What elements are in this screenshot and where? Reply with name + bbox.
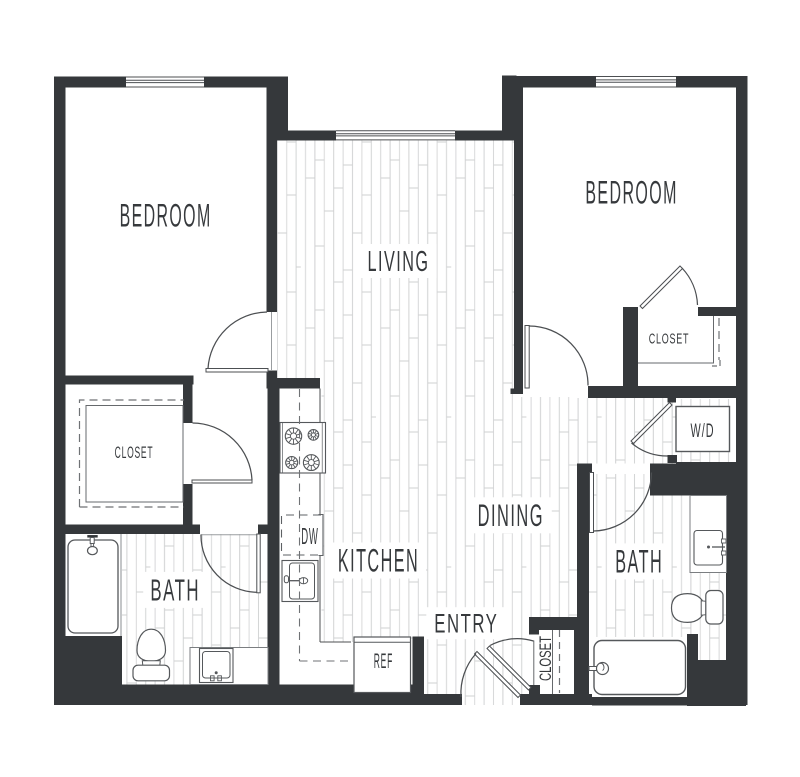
svg-text:CLOSET: CLOSET xyxy=(115,443,154,462)
svg-text:BEDROOM: BEDROOM xyxy=(585,173,678,210)
svg-text:DINING: DINING xyxy=(478,498,544,533)
svg-text:BATH: BATH xyxy=(615,543,663,579)
svg-text:ENTRY: ENTRY xyxy=(434,608,498,638)
svg-text:DW: DW xyxy=(301,523,319,549)
svg-text:LIVING: LIVING xyxy=(368,246,430,278)
svg-text:KITCHEN: KITCHEN xyxy=(338,542,419,578)
svg-text:CLOSET: CLOSET xyxy=(536,636,555,681)
svg-text:CLOSET: CLOSET xyxy=(649,331,690,348)
svg-text:BEDROOM: BEDROOM xyxy=(120,197,212,234)
svg-text:REF: REF xyxy=(374,650,393,673)
svg-text:BATH: BATH xyxy=(150,574,200,608)
svg-text:W/D: W/D xyxy=(691,420,715,442)
